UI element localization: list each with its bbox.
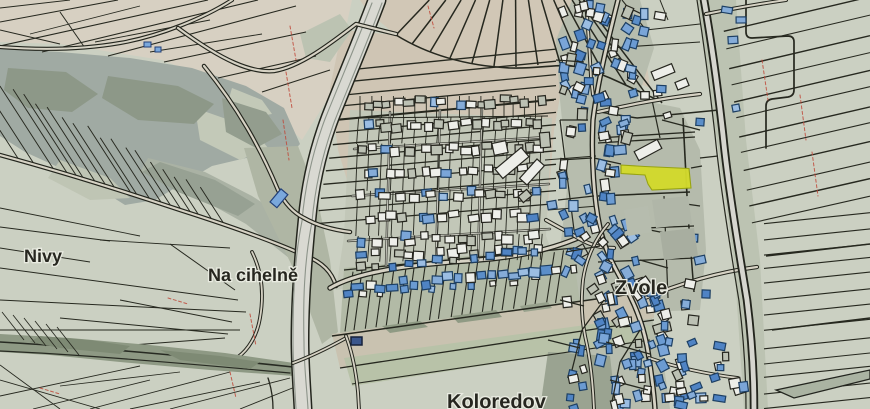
svg-text:Nivy: Nivy — [24, 246, 62, 266]
svg-text:Na cihelně: Na cihelně — [208, 265, 298, 285]
svg-text:Koloredov: Koloredov — [447, 391, 547, 409]
svg-text:Zvole: Zvole — [615, 277, 667, 299]
